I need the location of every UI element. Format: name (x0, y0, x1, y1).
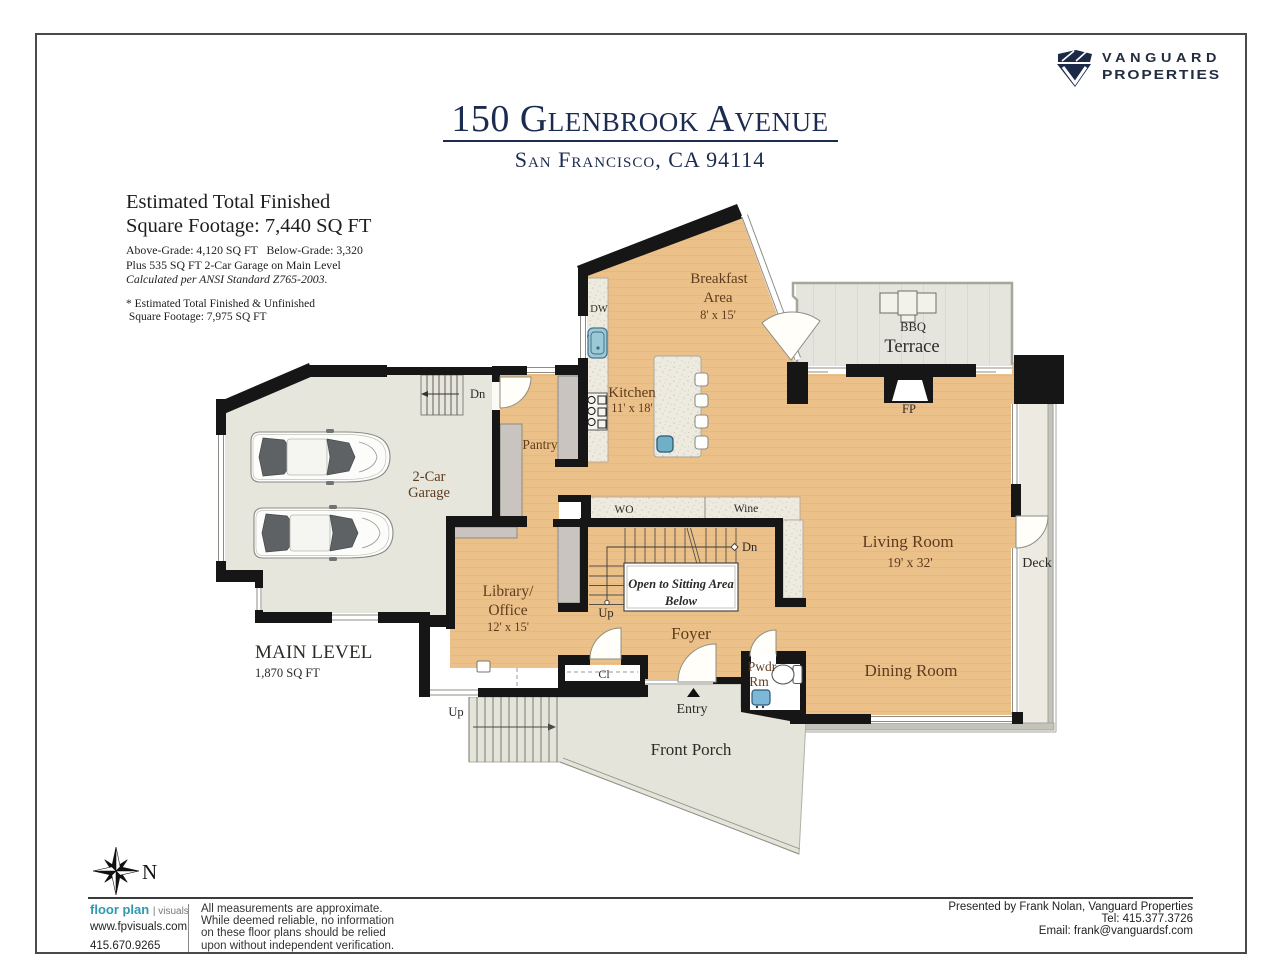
svg-text:Below: Below (664, 594, 698, 608)
svg-text:Terrace: Terrace (884, 337, 939, 357)
svg-text:Dn: Dn (742, 540, 758, 554)
svg-text:Up: Up (448, 705, 463, 719)
svg-text:FP: FP (902, 402, 916, 416)
svg-text:Breakfast: Breakfast (690, 271, 748, 287)
svg-text:Deck: Deck (1022, 556, 1052, 571)
svg-text:Up: Up (598, 606, 613, 620)
svg-text:Entry: Entry (676, 702, 707, 717)
svg-text:Living Room: Living Room (862, 532, 953, 551)
svg-text:Front Porch: Front Porch (651, 740, 732, 759)
svg-text:Library/: Library/ (483, 583, 534, 600)
svg-text:1,870 SQ FT: 1,870 SQ FT (255, 666, 320, 680)
svg-text:Open to Sitting Area: Open to Sitting Area (628, 577, 733, 591)
svg-text:12' x 15': 12' x 15' (487, 620, 529, 634)
svg-text:Dining Room: Dining Room (864, 661, 957, 680)
svg-text:DW: DW (590, 304, 608, 315)
svg-text:WO: WO (614, 504, 633, 516)
svg-text:Cl: Cl (598, 667, 610, 681)
svg-text:Rm: Rm (749, 674, 769, 689)
svg-text:Pantry: Pantry (522, 437, 557, 452)
svg-text:Kitchen: Kitchen (608, 385, 656, 401)
svg-text:8' x 15': 8' x 15' (700, 308, 736, 322)
svg-text:Area: Area (703, 290, 732, 306)
svg-text:19' x 32': 19' x 32' (887, 555, 932, 570)
svg-text:N: N (142, 860, 157, 884)
svg-text:2-Car: 2-Car (412, 469, 445, 485)
svg-text:Pwdr: Pwdr (748, 659, 777, 674)
svg-text:Foyer: Foyer (671, 624, 711, 643)
svg-text:Dn: Dn (470, 387, 486, 401)
svg-text:11' x 18': 11' x 18' (611, 401, 653, 415)
svg-text:MAIN LEVEL: MAIN LEVEL (255, 642, 373, 663)
svg-text:BBQ: BBQ (900, 320, 926, 334)
svg-text:Office: Office (488, 602, 527, 619)
svg-text:Wine: Wine (734, 503, 758, 515)
svg-text:Garage: Garage (408, 485, 450, 501)
